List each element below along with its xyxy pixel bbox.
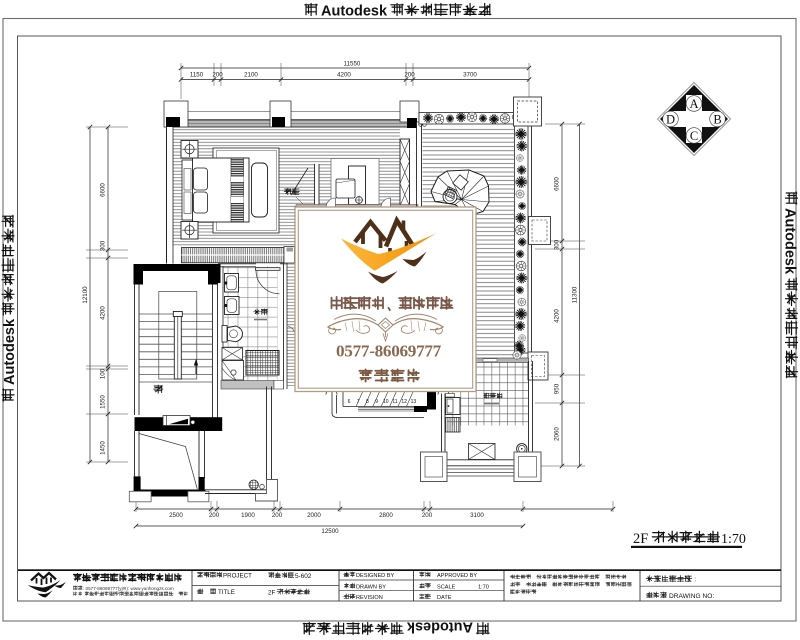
svg-text:10: 10 [383,399,389,405]
svg-text:PROJECT: PROJECT [223,573,252,580]
svg-text:6600: 6600 [100,183,107,197]
svg-text:2800: 2800 [379,512,393,519]
svg-text:6: 6 [348,399,351,405]
svg-text:DRAWN BY: DRAWN BY [356,584,386,590]
svg-text:C: C [690,129,698,143]
svg-text:: 0577-86069777(yj#I): www.yun: : 0577-86069777(yj#I): www.yunhongzs.com [83,586,174,591]
svg-text:DATE: DATE [437,595,452,601]
svg-text:2F: 2F [633,531,648,547]
svg-text:1450: 1450 [100,441,107,455]
svg-text:1550: 1550 [100,395,107,409]
svg-text:2060: 2060 [554,427,561,441]
svg-text:13: 13 [411,399,417,405]
svg-text:D: D [666,112,675,126]
svg-text:950: 950 [554,383,561,394]
svg-text:Autodesk: Autodesk [321,4,388,20]
svg-text:300: 300 [100,240,107,251]
svg-text:200: 200 [209,512,220,519]
svg-text:DESIGNED BY: DESIGNED BY [356,573,395,579]
svg-text:1900: 1900 [241,512,255,519]
svg-text:A: A [689,97,698,111]
svg-text:8: 8 [366,399,369,405]
svg-text:11: 11 [392,399,397,405]
svg-text:B: B [713,112,721,126]
svg-text:2F: 2F [268,590,276,597]
svg-text:3100: 3100 [470,512,484,519]
svg-text:2100: 2100 [244,72,258,79]
svg-text:4200: 4200 [100,306,107,320]
svg-text:APPROVED BY: APPROVED BY [437,573,477,579]
svg-text:TITLE: TITLE [218,589,235,596]
svg-text:100: 100 [100,368,107,379]
svg-text:DRAWING NO:: DRAWING NO: [669,593,714,600]
svg-text:SCALE: SCALE [437,584,456,590]
svg-text:11550: 11550 [344,61,361,68]
svg-text:12: 12 [401,399,407,405]
svg-text:12100: 12100 [82,286,89,304]
svg-text:12500: 12500 [321,528,339,535]
svg-text:2500: 2500 [169,512,183,519]
svg-text:Autodesk: Autodesk [782,208,798,275]
svg-text:200: 200 [422,512,433,519]
svg-text:1150: 1150 [190,72,204,79]
svg-text:Autodesk: Autodesk [2,318,18,385]
svg-text:200: 200 [272,512,283,519]
svg-text:6600: 6600 [554,177,561,191]
svg-text:11300: 11300 [572,286,579,303]
svg-text:4200: 4200 [337,72,351,79]
svg-text:4200: 4200 [554,309,561,323]
svg-text:Autodesk: Autodesk [406,619,473,635]
svg-text:2000: 2000 [307,512,321,519]
svg-text:5-602: 5-602 [295,573,312,580]
svg-text:1:70: 1:70 [478,584,489,590]
svg-text:3700: 3700 [463,72,477,79]
svg-text:REVISION: REVISION [356,595,383,601]
svg-text:1:70: 1:70 [721,532,746,547]
svg-text:7: 7 [357,399,360,405]
svg-text:0577-86069777: 0577-86069777 [336,342,442,361]
svg-text:9: 9 [375,399,378,405]
